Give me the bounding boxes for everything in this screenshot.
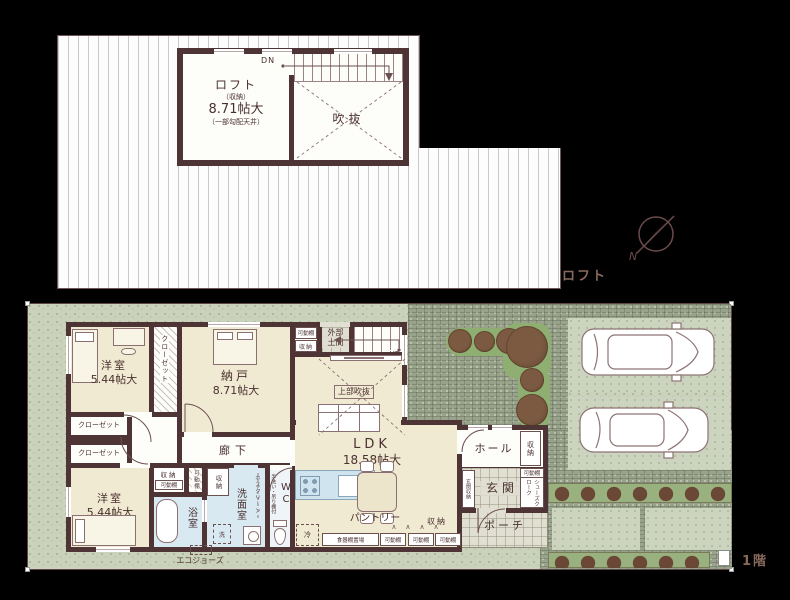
- room-bath: 浴室: [149, 492, 207, 552]
- paving-strip-top: [568, 304, 731, 318]
- window: [66, 336, 71, 374]
- hall-storage-label: 収納: [526, 441, 536, 457]
- hall-label: ホール: [466, 442, 522, 456]
- washroom-storage-box: 収納: [207, 468, 229, 496]
- washer-label: 洗: [219, 530, 225, 539]
- bed-icon: [72, 515, 136, 546]
- room-western-2: 洋室 5.44帖大: [66, 463, 154, 552]
- stove-icon: [300, 476, 320, 496]
- sliding-door: [202, 500, 207, 522]
- car-icon-2: [576, 400, 712, 460]
- door-opening: [124, 412, 152, 417]
- storage-stack-bottom: 可動棚: [155, 480, 183, 490]
- fridge-label: 冷: [304, 530, 311, 540]
- site-corner-marker: [25, 301, 30, 306]
- window: [402, 385, 407, 417]
- compass-icon: N: [628, 206, 684, 262]
- loft-dn-label: DN: [261, 56, 275, 66]
- cupboard-place-box: 食器棚置場: [322, 533, 379, 546]
- window: [66, 487, 71, 517]
- tree-icon: [474, 331, 495, 352]
- porch-label: ポーチ: [470, 519, 540, 533]
- movable-shelf-box: 可動棚: [380, 533, 406, 546]
- tree-icon: [448, 329, 472, 353]
- window: [402, 335, 407, 365]
- outer-doma-label: 外部 土間: [322, 328, 349, 348]
- vanity-icon: [243, 526, 261, 545]
- car-icon-1: [578, 320, 718, 384]
- room-washroom: 収納 洗面室 ホスクリーン 洗: [202, 463, 270, 552]
- door-opening: [184, 432, 212, 437]
- shoes-cloak-box: 可動棚 シューズクローク: [520, 468, 544, 508]
- washer-box: 洗: [213, 524, 231, 544]
- door-opening: [120, 463, 150, 468]
- outer-doma-line1: 外部: [322, 328, 349, 338]
- compass-north-label: N: [629, 250, 637, 262]
- hall-storage-box: 収納: [520, 431, 541, 466]
- pillow-icon: [217, 332, 233, 340]
- pillow-icon: [237, 332, 253, 340]
- loft-floor-tag: ロフト: [562, 265, 607, 284]
- floor-plan-canvas: DN ロフト （収納） 8.71帖大 （一部勾配天井） 吹抜 N ロフト: [0, 0, 790, 600]
- door-opening: [457, 430, 462, 454]
- tree-icon: [520, 368, 544, 392]
- entrance-storage-label: 玄関収納: [465, 479, 472, 499]
- dining-table-icon: [357, 472, 397, 512]
- door-opening: [234, 465, 258, 470]
- ldk-name: LDK: [312, 437, 432, 453]
- tv-icon: [344, 357, 384, 359]
- eco-jozu-box: [190, 545, 212, 555]
- storage-stack-top: 収納: [155, 469, 183, 479]
- hedge-row: [548, 483, 732, 503]
- pavement-block: [552, 508, 640, 550]
- pillow-icon: [75, 519, 85, 543]
- bath-label: 浴室: [184, 507, 197, 529]
- loft-room-size: 8.71帖大: [183, 102, 289, 118]
- entrance: 玄関収納 玄関 可動棚 シューズクローク: [457, 467, 548, 513]
- toilet-tank-icon: [273, 520, 287, 527]
- tree-icon: [516, 394, 548, 426]
- sink-icon: [248, 531, 259, 542]
- ldk-storage-label: 収納: [414, 517, 460, 527]
- hall: ホール 収納: [457, 425, 548, 472]
- window: [96, 547, 130, 552]
- bed-icon: [213, 329, 257, 365]
- fridge-box: 冷: [296, 524, 319, 546]
- hedge-row: [548, 552, 710, 568]
- loft-window: [262, 49, 292, 54]
- sofa-icon: [318, 404, 380, 432]
- corridor-left: [127, 412, 182, 470]
- room-nando: 納戸 8.71帖大: [177, 322, 295, 437]
- outer-doma-line2: 土間: [322, 338, 349, 348]
- door-opening: [320, 322, 350, 327]
- washroom-label: 洗面室: [233, 488, 246, 521]
- void-above-label: 上部吹抜: [334, 385, 374, 399]
- room-western-1-name: 洋室: [79, 359, 149, 373]
- pavement-block: [645, 508, 731, 550]
- desk-icon: [113, 328, 145, 346]
- pillow-icon: [75, 332, 94, 342]
- gate-post: [718, 550, 730, 566]
- chair-icon: [380, 461, 394, 472]
- closet-a-label: クローゼット: [71, 421, 127, 430]
- chair-icon: [360, 461, 374, 472]
- closet-b-label: クローゼット: [71, 449, 127, 458]
- loft-room-label: ロフト （収納） 8.71帖大 （一部勾配天井）: [183, 78, 289, 127]
- entrance-storage-box: 玄関収納: [462, 470, 475, 508]
- loft-stairs: [294, 54, 403, 82]
- loft-window: [334, 49, 372, 54]
- shoes-cloak-label: シューズクローク: [524, 479, 540, 507]
- toilet-bowl-icon: [274, 528, 286, 545]
- corridor-label: 廊下: [200, 444, 270, 458]
- room-nando-size: 8.71帖大: [196, 384, 276, 398]
- loft-room-note: （一部勾配天井）: [183, 118, 289, 127]
- loft-void-label: 吹抜: [294, 112, 403, 127]
- tree-icon: [506, 326, 548, 368]
- loft-window: [214, 49, 244, 54]
- room-western-1-label: 洋室 5.44帖大: [79, 359, 149, 387]
- room-western-2-name: 洋室: [75, 492, 145, 506]
- window: [208, 322, 260, 327]
- room-western-1-size: 5.44帖大: [79, 373, 149, 387]
- thin-closet-label: 可動棚: [192, 470, 199, 490]
- site-corner-marker: [25, 567, 30, 572]
- hoscreen-label: ホスクリーン: [253, 475, 260, 514]
- movable-shelf-box: 可動棚: [435, 533, 461, 546]
- room-nando-label: 納戸 8.71帖大: [196, 369, 276, 398]
- mini-closet-shelf-label: 可動棚: [295, 327, 317, 339]
- entrance-label: 玄関: [480, 481, 524, 496]
- window: [492, 425, 512, 430]
- washroom-storage-label: 収納: [213, 475, 223, 490]
- wc-note: 手洗い・吊り棚付: [270, 474, 276, 514]
- loft-room-sub: （収納）: [183, 93, 289, 102]
- room-western-1: 洋室 5.44帖大: [66, 322, 154, 417]
- door-opening: [476, 508, 506, 513]
- loft-room-name: ロフト: [183, 78, 289, 93]
- first-floor-tag: 1階: [742, 550, 768, 569]
- door-opening: [270, 465, 292, 470]
- mini-closet-storage-label: 収納: [295, 340, 317, 352]
- eco-jozu-label: エコジョーズ: [160, 556, 240, 566]
- window: [468, 425, 488, 430]
- loft-room: DN ロフト （収納） 8.71帖大 （一部勾配天井） 吹抜: [177, 48, 409, 166]
- movable-shelf-box: 可動棚: [408, 533, 434, 546]
- bathtub-icon: [156, 499, 178, 543]
- shoes-cloak-shelf-label: 可動棚: [521, 469, 543, 478]
- chair-icon: [121, 348, 136, 355]
- room-nando-name: 納戸: [196, 369, 276, 384]
- closet-vertical-label: クローゼット: [160, 335, 169, 383]
- door-opening: [290, 440, 295, 466]
- cupboard-place-label: 食器棚置場: [337, 536, 365, 544]
